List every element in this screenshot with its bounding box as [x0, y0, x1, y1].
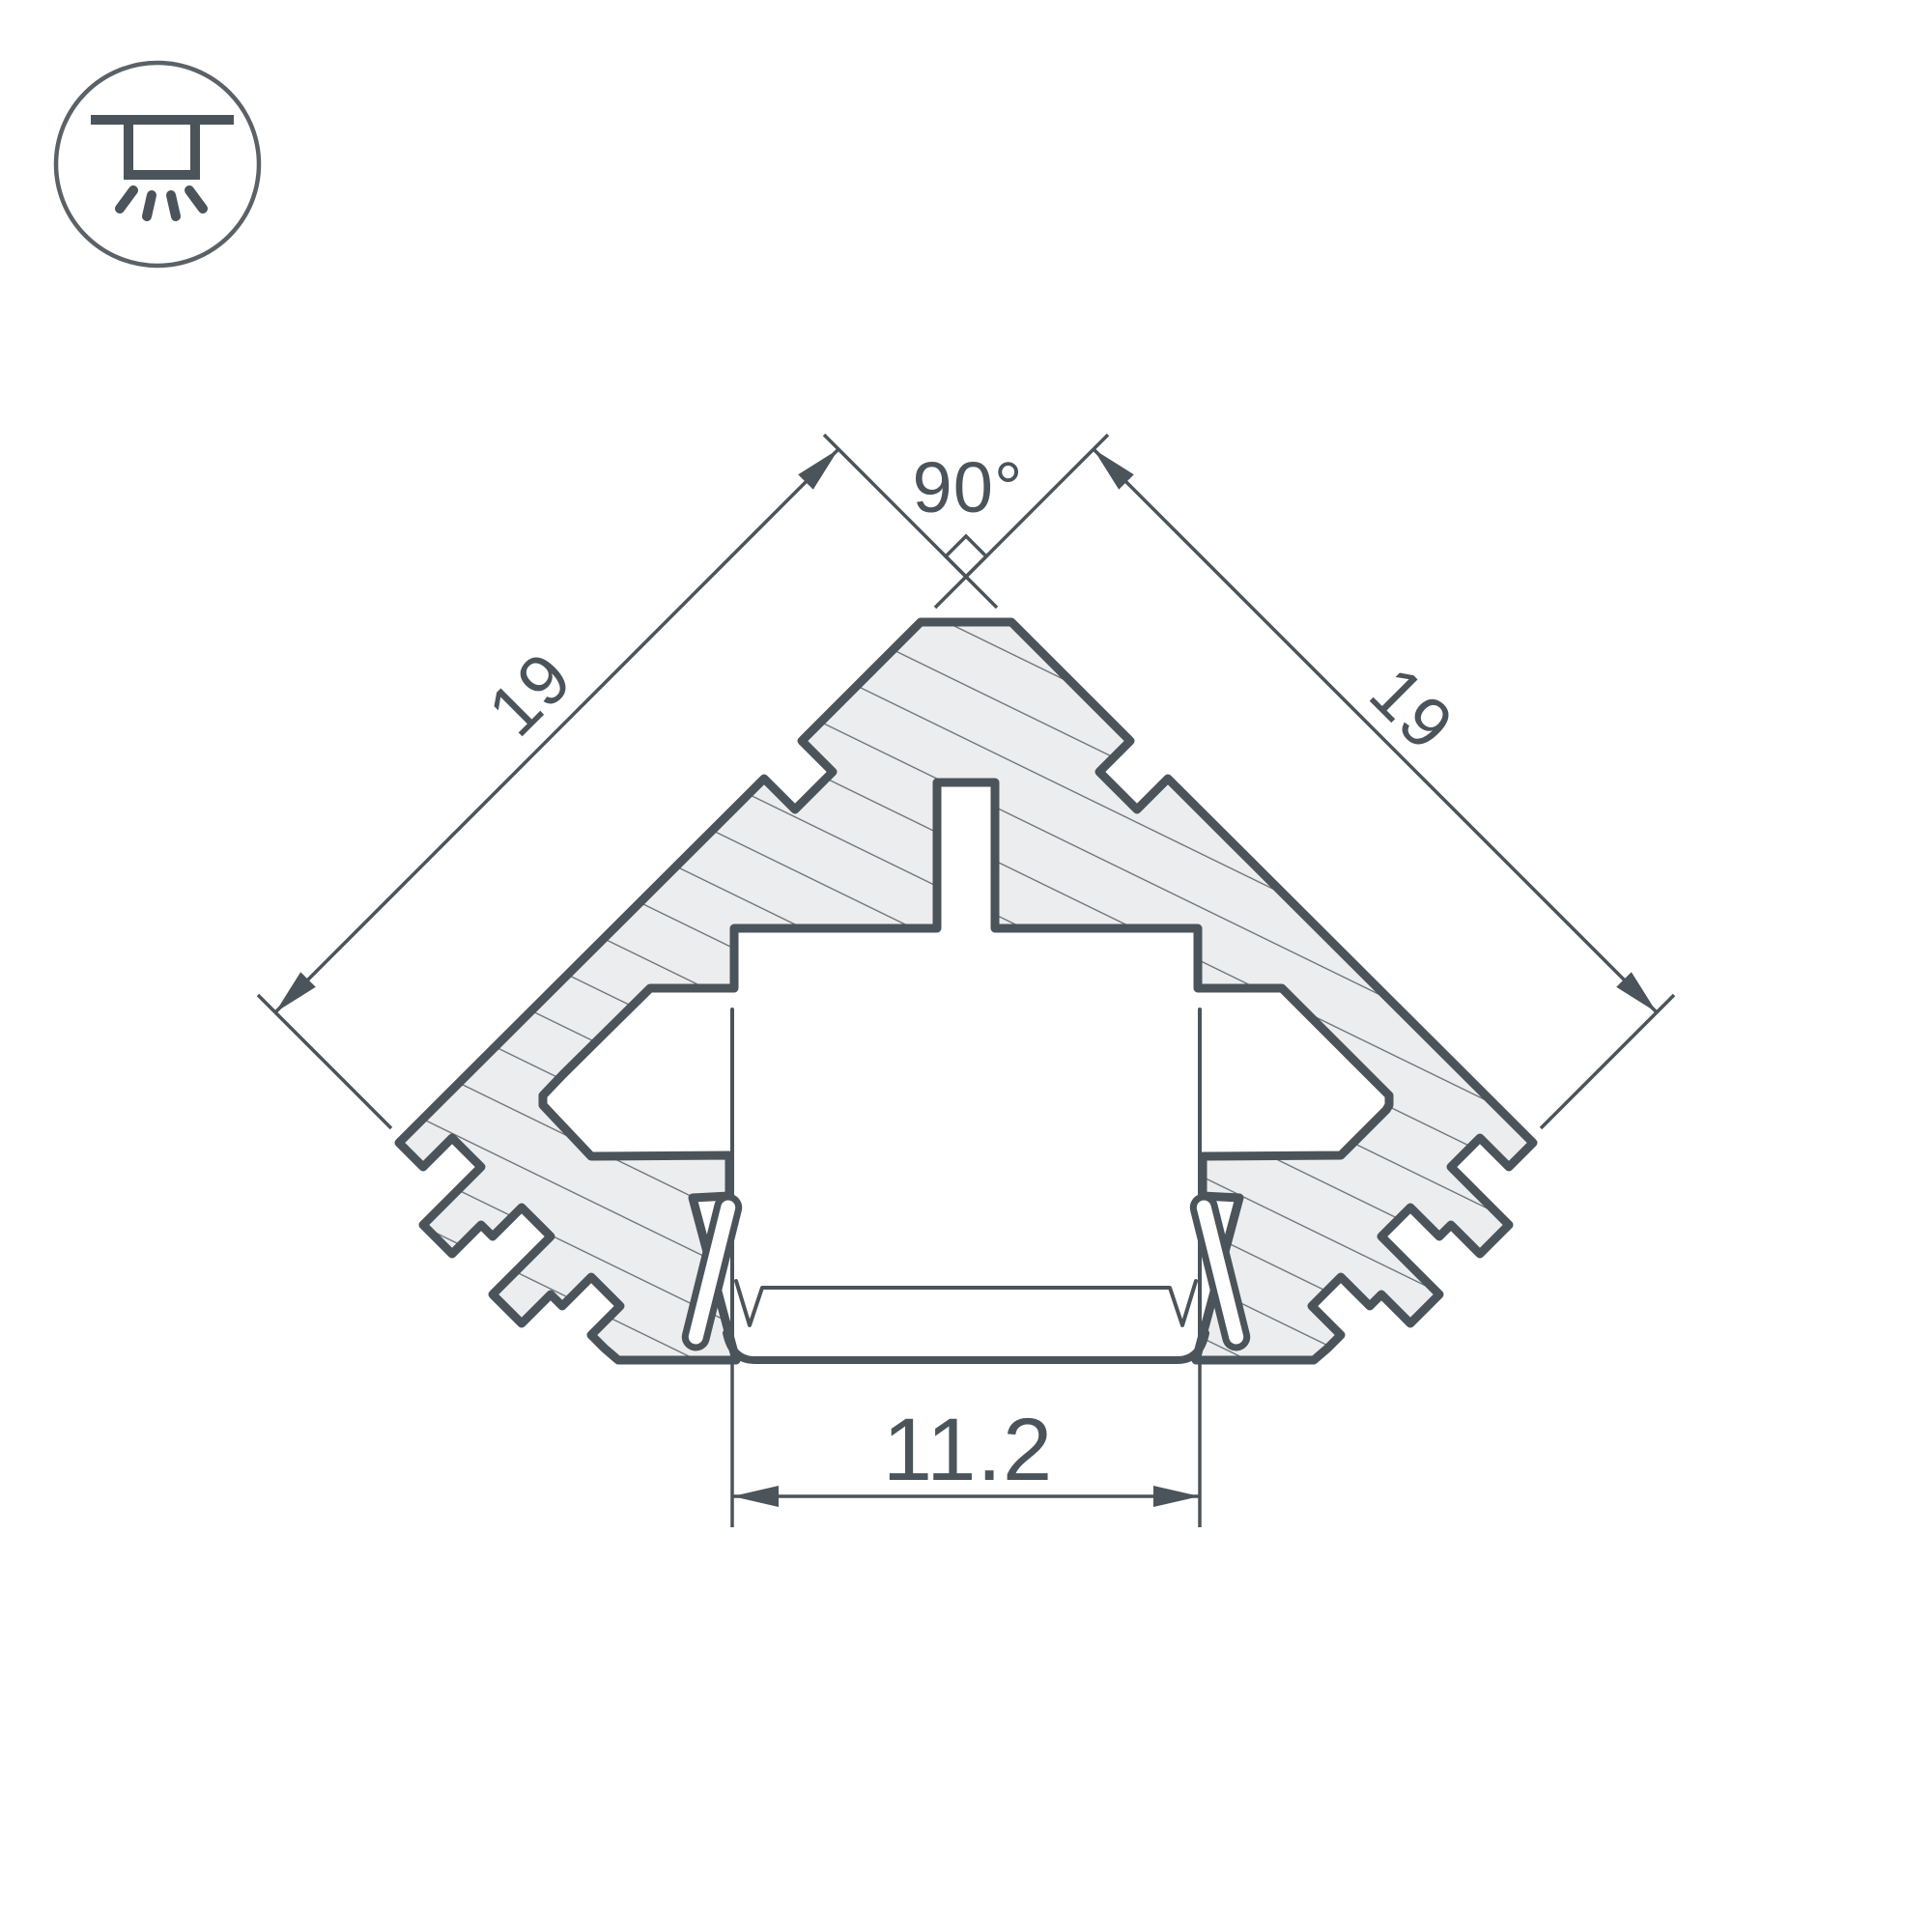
window-arrow-left [732, 1486, 779, 1507]
aluminum-profile-body [399, 622, 1533, 1360]
drawing-canvas: 90° 19 19 11.2 [0, 0, 1932, 1932]
mount-type-icon [56, 63, 259, 266]
right-tip-extension [1541, 995, 1674, 1128]
left-tip-extension [258, 995, 391, 1128]
right-angle-marker [946, 536, 986, 577]
dimension-apex-angle: 90° [824, 435, 1108, 608]
diffuser-top-face [736, 1281, 1196, 1325]
window-width-label: 11.2 [883, 1401, 1053, 1499]
profile-outline [399, 622, 1533, 1360]
right-side-label: 19 [1354, 651, 1468, 765]
dimension-window-width: 11.2 [732, 1364, 1200, 1527]
profile-cross-section-drawing: 90° 19 19 11.2 [0, 0, 1932, 1932]
icon-circle [56, 63, 259, 266]
left-side-label: 19 [472, 637, 586, 751]
apex-angle-label: 90° [913, 447, 1024, 527]
diffuser-cover [683, 1009, 1249, 1360]
recessed-ceiling-light-icon [91, 120, 234, 216]
window-arrow-right [1153, 1486, 1200, 1507]
diffuser-bottom-face [726, 1333, 1206, 1360]
